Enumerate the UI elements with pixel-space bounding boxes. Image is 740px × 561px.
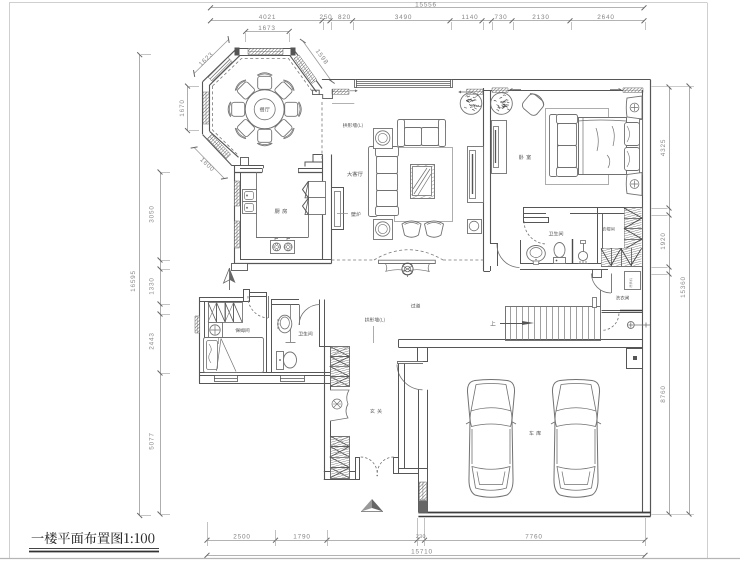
svg-text:1790: 1790 (293, 534, 310, 541)
svg-text:3050: 3050 (149, 205, 156, 222)
svg-text:1920: 1920 (660, 232, 667, 249)
svg-text:15556: 15556 (415, 1, 437, 8)
svg-text:2130: 2130 (532, 14, 549, 21)
svg-text:2640: 2640 (597, 14, 614, 21)
svg-text:16595: 16595 (130, 270, 137, 292)
svg-text:3490: 3490 (395, 14, 412, 21)
svg-text:1140: 1140 (462, 14, 479, 21)
svg-text:1673: 1673 (258, 25, 275, 32)
svg-text:8760: 8760 (660, 385, 667, 402)
svg-text:1670: 1670 (179, 99, 186, 116)
svg-text:7760: 7760 (525, 534, 542, 541)
svg-text:1330: 1330 (149, 277, 156, 294)
svg-text:250: 250 (319, 14, 332, 21)
svg-text:4325: 4325 (660, 139, 667, 156)
svg-text:4021: 4021 (259, 14, 276, 21)
svg-text:230: 230 (416, 534, 426, 540)
svg-text:5077: 5077 (149, 432, 156, 449)
svg-text:15360: 15360 (680, 276, 687, 298)
svg-text:820: 820 (338, 14, 351, 21)
svg-text:2443: 2443 (149, 332, 156, 349)
svg-text:2500: 2500 (233, 534, 250, 541)
svg-text:15710: 15710 (411, 549, 433, 556)
svg-text:730: 730 (494, 14, 507, 21)
